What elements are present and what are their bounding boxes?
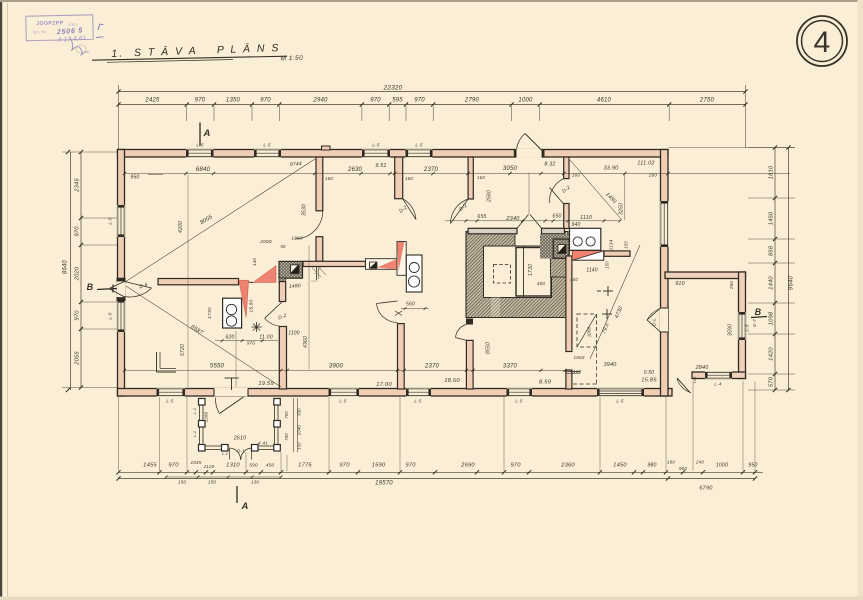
svg-text:2040: 2040 <box>297 424 302 436</box>
svg-text:1730: 1730 <box>528 264 534 276</box>
svg-text:140: 140 <box>252 258 257 266</box>
svg-text:3050: 3050 <box>503 166 518 172</box>
svg-text:L-5: L-5 <box>372 143 379 148</box>
svg-text:L-1: L-1 <box>192 408 197 414</box>
svg-text:930: 930 <box>297 408 302 416</box>
svg-text:A: A <box>240 501 248 512</box>
svg-text:1100: 1100 <box>288 331 300 337</box>
svg-text:970: 970 <box>370 98 381 104</box>
svg-text:2940: 2940 <box>312 98 328 104</box>
svg-text:L-1: L-1 <box>222 451 228 456</box>
svg-text:650: 650 <box>552 214 561 220</box>
svg-text:8640: 8640 <box>63 259 69 274</box>
svg-text:B: B <box>87 282 94 292</box>
svg-text:1450: 1450 <box>613 463 627 469</box>
svg-text:Є-7: Є-7 <box>752 319 757 327</box>
svg-text:1480: 1480 <box>289 283 301 290</box>
svg-text:570: 570 <box>769 376 775 387</box>
svg-text:1000: 1000 <box>716 463 728 469</box>
svg-text:3530: 3530 <box>302 204 308 216</box>
svg-text:0.50: 0.50 <box>644 370 655 376</box>
svg-text:L-5: L-5 <box>263 143 270 148</box>
svg-text:1440: 1440 <box>769 276 775 290</box>
svg-text:2560: 2560 <box>487 190 493 203</box>
svg-text:2055: 2055 <box>75 351 81 366</box>
svg-text:1110: 1110 <box>580 215 592 221</box>
svg-text:1455: 1455 <box>143 463 157 469</box>
svg-text:450: 450 <box>266 463 275 469</box>
svg-text:18.60: 18.60 <box>444 378 460 384</box>
svg-text:1098: 1098 <box>769 311 775 325</box>
svg-text:260: 260 <box>729 281 734 290</box>
svg-text:3940: 3940 <box>604 362 617 368</box>
svg-text:150: 150 <box>178 480 187 485</box>
svg-text:2425: 2425 <box>144 98 160 104</box>
svg-text:33.90: 33.90 <box>604 166 620 172</box>
svg-text:750: 750 <box>284 411 289 419</box>
svg-text:1810: 1810 <box>769 165 775 179</box>
svg-text:L-5: L-5 <box>616 399 623 404</box>
svg-text:19570: 19570 <box>375 481 393 487</box>
svg-text:5550: 5550 <box>210 364 225 370</box>
svg-text:8550: 8550 <box>486 342 492 354</box>
svg-text:970: 970 <box>168 463 179 469</box>
svg-text:590: 590 <box>249 463 258 469</box>
svg-text:750: 750 <box>284 433 289 441</box>
svg-text:130: 130 <box>297 442 302 450</box>
svg-text:1134: 1134 <box>609 239 614 250</box>
svg-text:L-5: L-5 <box>166 399 173 404</box>
svg-text:950: 950 <box>748 463 757 469</box>
svg-text:2630: 2630 <box>347 167 363 173</box>
svg-text:2750: 2750 <box>699 98 715 104</box>
svg-text:260: 260 <box>648 173 658 178</box>
svg-text:940: 940 <box>572 222 581 228</box>
svg-text:4: 4 <box>814 26 831 59</box>
svg-text:atkrit: atkrit <box>68 22 79 27</box>
svg-text:D-1: D-1 <box>237 449 245 454</box>
svg-text:950: 950 <box>130 175 139 181</box>
svg-text:970: 970 <box>195 98 206 104</box>
svg-text:L-1: L-1 <box>192 431 197 437</box>
svg-text:910: 910 <box>675 281 685 287</box>
svg-text:1060: 1060 <box>573 355 584 360</box>
svg-text:980: 980 <box>647 463 656 469</box>
svg-text:Isn. Nr.: Isn. Nr. <box>33 29 48 34</box>
svg-text:19.59: 19.59 <box>258 381 274 387</box>
svg-text:150: 150 <box>208 480 217 485</box>
svg-text:L-3: L-3 <box>745 324 750 331</box>
svg-text:1160: 1160 <box>571 369 582 374</box>
svg-text:1450: 1450 <box>769 211 775 225</box>
svg-text:1280: 1280 <box>204 411 209 422</box>
svg-text:180: 180 <box>667 460 675 465</box>
svg-text:L-5: L-5 <box>415 143 422 148</box>
svg-text:9.51: 9.51 <box>375 163 386 169</box>
svg-text:970: 970 <box>405 463 416 469</box>
svg-text:5720: 5720 <box>180 344 186 356</box>
svg-text:240: 240 <box>695 460 704 465</box>
svg-text:2000: 2000 <box>259 239 272 245</box>
svg-text:1000: 1000 <box>518 98 533 104</box>
svg-text:150: 150 <box>605 261 610 269</box>
svg-text:90: 90 <box>280 244 286 249</box>
svg-text:2340: 2340 <box>505 216 520 222</box>
svg-text:560: 560 <box>406 302 415 308</box>
svg-text:4360: 4360 <box>303 336 309 348</box>
svg-text:3370: 3370 <box>503 364 518 370</box>
svg-text:900: 900 <box>679 466 687 471</box>
svg-text:D-L: D-L <box>652 318 657 326</box>
svg-text:160: 160 <box>405 176 413 181</box>
svg-text:3250: 3250 <box>619 203 625 215</box>
svg-text:620: 620 <box>226 335 235 341</box>
svg-text:970: 970 <box>75 226 81 237</box>
svg-text:4200: 4200 <box>178 221 184 233</box>
svg-text:L-5: L-5 <box>196 143 203 148</box>
svg-text:970: 970 <box>247 341 256 346</box>
svg-text:L-5: L-5 <box>108 217 113 224</box>
svg-text:8.32: 8.32 <box>544 162 555 168</box>
svg-text:111.02: 111.02 <box>637 161 655 167</box>
svg-text:2690: 2690 <box>460 463 475 469</box>
svg-text:3590: 3590 <box>728 324 734 336</box>
svg-text:L-4: L-4 <box>714 382 721 387</box>
svg-text:400: 400 <box>570 277 578 282</box>
svg-text:2360: 2360 <box>560 463 575 469</box>
svg-text:2370: 2370 <box>423 167 439 173</box>
svg-text:655: 655 <box>477 214 486 220</box>
svg-text:1590: 1590 <box>372 463 386 469</box>
svg-text:2020: 2020 <box>75 266 81 281</box>
svg-text:1060: 1060 <box>587 326 592 337</box>
svg-text:970: 970 <box>339 463 350 469</box>
svg-text:8.59: 8.59 <box>539 380 552 386</box>
svg-text:4610: 4610 <box>597 98 612 104</box>
svg-text:11.00: 11.00 <box>259 335 273 341</box>
svg-text:970: 970 <box>510 463 521 469</box>
svg-text:970: 970 <box>414 98 425 104</box>
svg-text:1045: 1045 <box>190 460 201 465</box>
svg-text:L-5: L-5 <box>108 312 113 319</box>
svg-text:M 1:50: M 1:50 <box>281 55 304 63</box>
svg-text:B: B <box>755 307 762 317</box>
svg-text:1140: 1140 <box>586 268 598 274</box>
svg-text:160: 160 <box>477 175 485 180</box>
svg-text:3900: 3900 <box>329 364 344 370</box>
svg-text:1775: 1775 <box>298 463 312 469</box>
svg-text:1730: 1730 <box>207 307 213 319</box>
svg-text:L-5: L-5 <box>515 399 522 404</box>
svg-text:150: 150 <box>624 241 629 249</box>
svg-text:2840: 2840 <box>695 365 709 371</box>
svg-text:9744: 9744 <box>290 161 302 168</box>
svg-text:160: 160 <box>572 173 580 178</box>
svg-text:1420: 1420 <box>769 347 775 361</box>
svg-text:2790: 2790 <box>464 98 480 104</box>
svg-text:160: 160 <box>325 176 333 181</box>
svg-text:2610: 2610 <box>233 436 246 442</box>
svg-text:1120: 1120 <box>204 464 215 469</box>
svg-text:6790: 6790 <box>699 486 713 492</box>
svg-text:15.80: 15.80 <box>249 299 255 312</box>
svg-text:6840: 6840 <box>196 166 211 173</box>
svg-text:1360: 1360 <box>291 236 303 242</box>
svg-text:2370: 2370 <box>424 364 440 370</box>
svg-text:130: 130 <box>251 480 260 485</box>
svg-text:1310: 1310 <box>226 463 240 469</box>
svg-text:1350: 1350 <box>226 98 241 104</box>
svg-text:22320: 22320 <box>383 85 403 92</box>
svg-text:L-5: L-5 <box>414 399 421 404</box>
svg-text:9640: 9640 <box>789 275 795 290</box>
svg-text:JOOPZPP: JOOPZPP <box>36 20 64 27</box>
svg-text:858: 858 <box>769 245 775 256</box>
svg-text:2345: 2345 <box>75 178 81 193</box>
svg-text:595: 595 <box>392 98 403 104</box>
svg-text:150: 150 <box>693 376 697 384</box>
svg-text:17.00: 17.00 <box>376 382 392 388</box>
svg-text:4.41: 4.41 <box>258 441 268 447</box>
svg-text:15.85: 15.85 <box>641 378 657 384</box>
svg-text:970: 970 <box>260 98 271 104</box>
svg-text:400: 400 <box>537 281 546 286</box>
svg-text:L-5: L-5 <box>339 399 346 404</box>
svg-text:970: 970 <box>75 310 81 321</box>
svg-text:A: A <box>202 128 210 139</box>
